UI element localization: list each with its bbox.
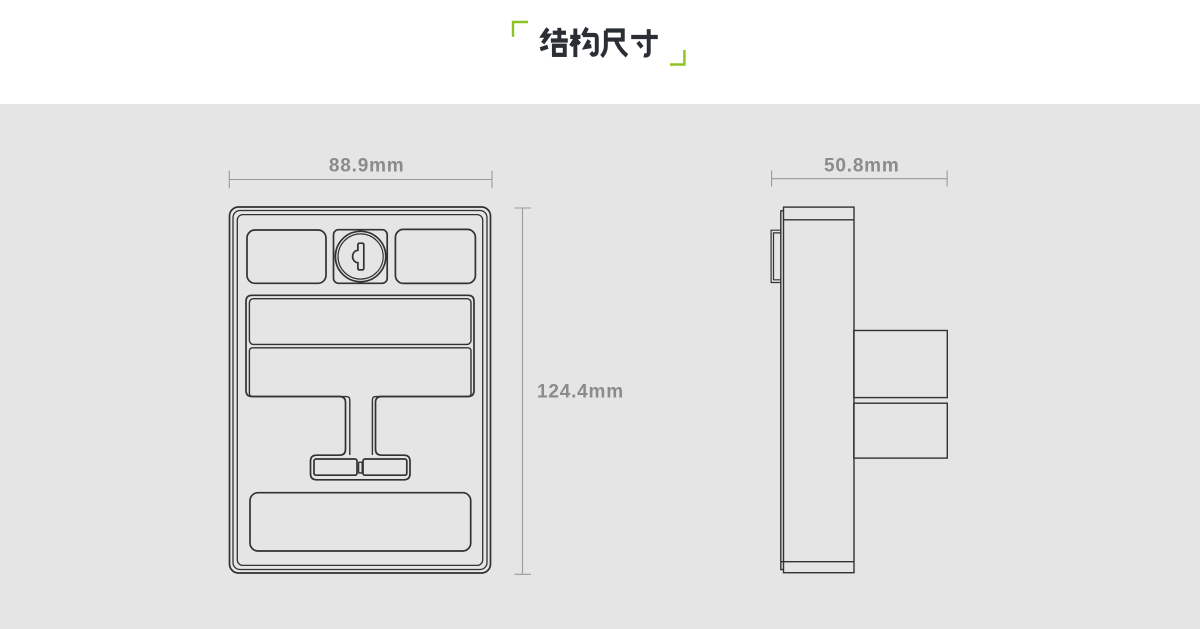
svg-text:88.9mm: 88.9mm — [329, 156, 405, 177]
svg-text:50.8mm: 50.8mm — [824, 156, 900, 177]
svg-text:124.4mm: 124.4mm — [537, 382, 624, 403]
